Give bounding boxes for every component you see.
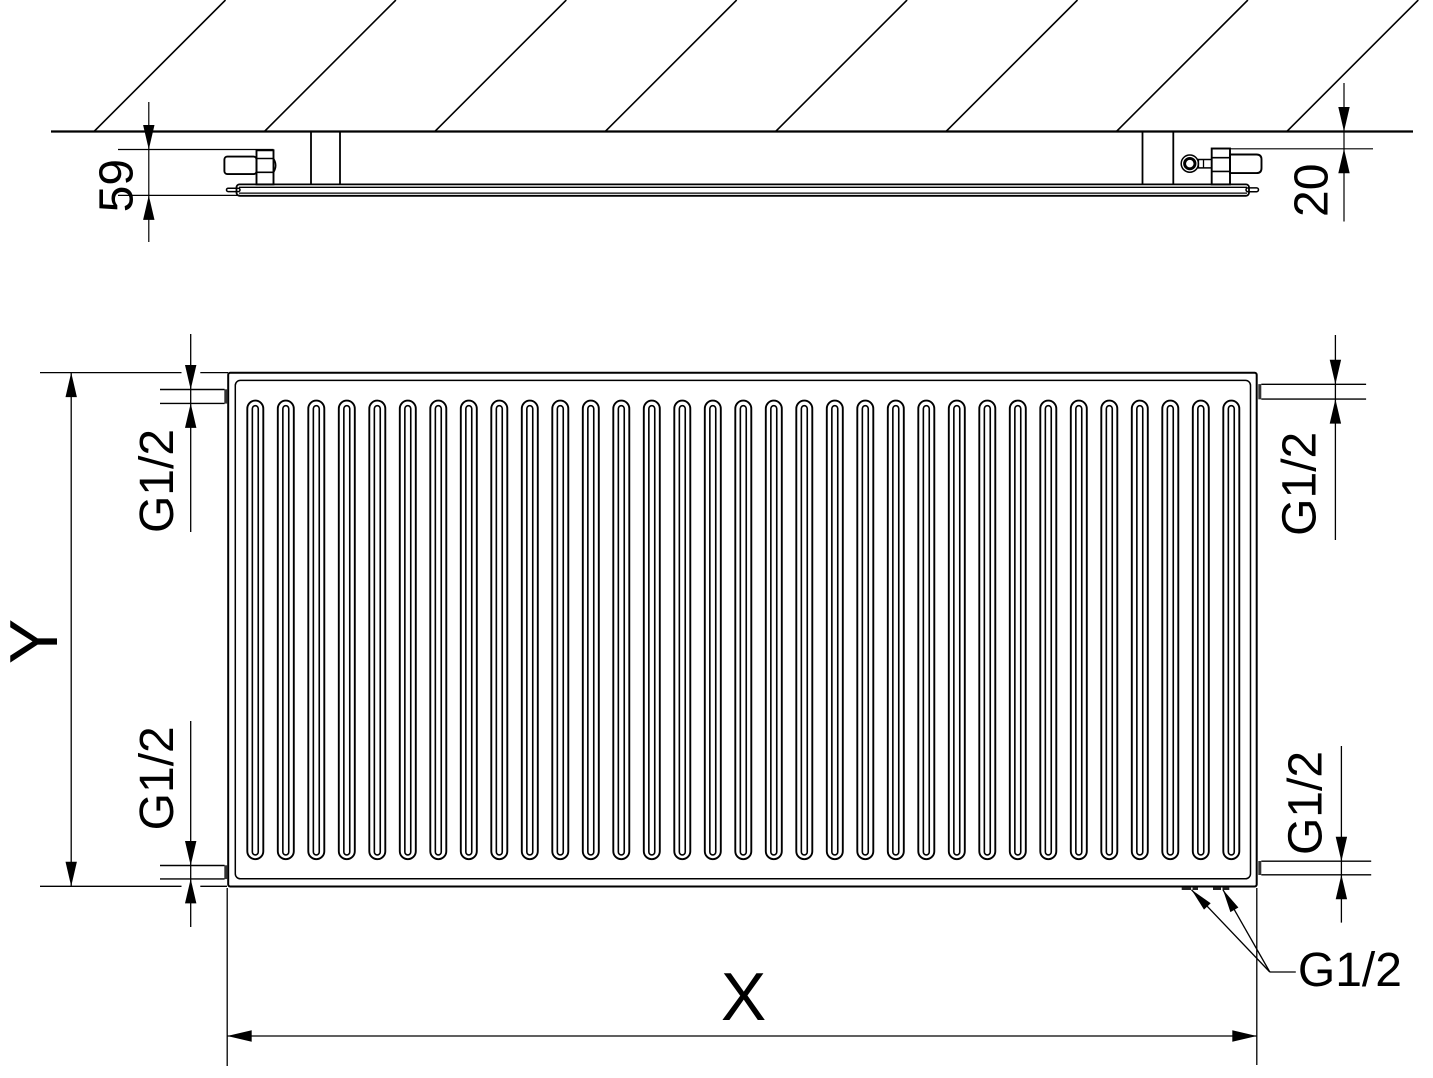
- svg-text:X: X: [721, 959, 766, 1035]
- svg-text:20: 20: [1286, 164, 1339, 217]
- svg-text:G1/2: G1/2: [131, 726, 184, 830]
- svg-text:G1/2: G1/2: [1298, 944, 1402, 997]
- svg-text:G1/2: G1/2: [1273, 432, 1326, 536]
- svg-text:59: 59: [91, 159, 144, 212]
- svg-text:G1/2: G1/2: [131, 429, 184, 533]
- svg-text:Y: Y: [0, 619, 72, 664]
- svg-text:G1/2: G1/2: [1280, 751, 1333, 855]
